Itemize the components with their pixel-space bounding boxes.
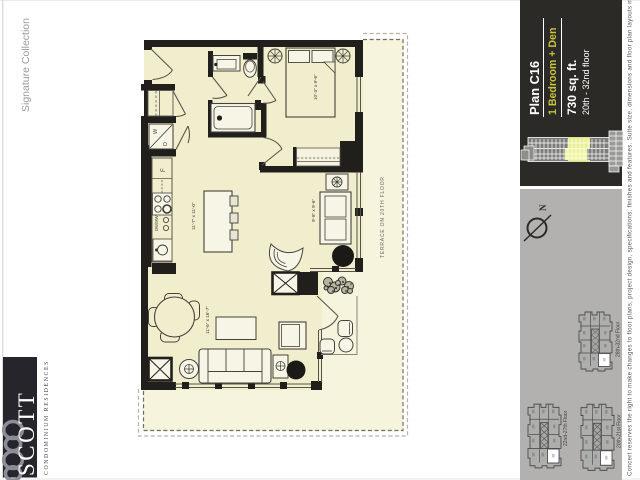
- svg-text:D: D: [163, 142, 169, 146]
- svg-text:W: W: [153, 128, 159, 134]
- svg-text:20th-21st Floor: 20th-21st Floor: [617, 414, 623, 448]
- svg-text:730 sq. ft.: 730 sq. ft.: [565, 60, 579, 115]
- svg-text:11′-6″ x 16′-7″: 11′-6″ x 16′-7″: [205, 306, 210, 334]
- svg-text:Plan C16: Plan C16: [527, 61, 542, 115]
- svg-text:DW/MW: DW/MW: [154, 215, 159, 231]
- svg-text:CONDOMINIUM RESIDENCES: CONDOMINIUM RESIDENCES: [44, 360, 50, 475]
- svg-text:10′-3″ x 9′-6″: 10′-3″ x 9′-6″: [313, 74, 318, 100]
- svg-text:TERRACE ON 20TH FLOOR: TERRACE ON 20TH FLOOR: [380, 176, 386, 258]
- svg-text:22nd-27th Floor: 22nd-27th Floor: [563, 410, 569, 446]
- svg-text:F: F: [161, 168, 167, 172]
- svg-text:9′-8″ x 9′-6″: 9′-8″ x 9′-6″: [311, 199, 316, 222]
- svg-text:11′-7″ x 11′-0″: 11′-7″ x 11′-0″: [191, 202, 196, 230]
- svg-text:1 Bedroom + Den: 1 Bedroom + Den: [547, 28, 559, 115]
- svg-text:N: N: [538, 204, 548, 211]
- svg-text:SCOTT: SCOTT: [14, 391, 39, 476]
- svg-text:28th-32nd Floor: 28th-32nd Floor: [616, 321, 622, 357]
- svg-text:Signature Collection: Signature Collection: [20, 18, 32, 112]
- svg-text:Concert reserves the right to: Concert reserves the right to make chang…: [627, 0, 634, 476]
- svg-text:20th - 32nd floor: 20th - 32nd floor: [581, 49, 591, 115]
